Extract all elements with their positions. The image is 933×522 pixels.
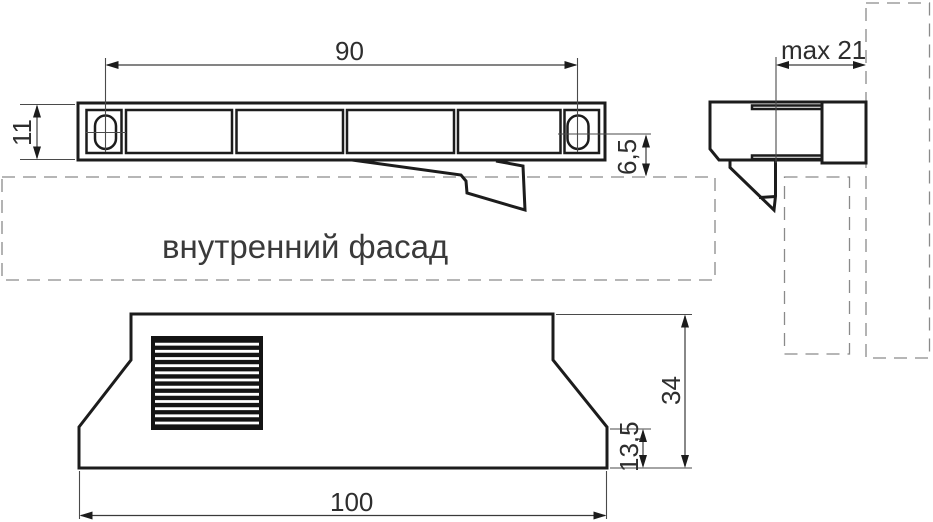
internal-facade-label: внутренний фасад xyxy=(162,228,448,265)
side-view-hook xyxy=(730,161,776,210)
technical-drawing: внутренний фасад xyxy=(0,0,933,522)
front-view xyxy=(79,314,607,468)
side-view xyxy=(710,102,866,210)
drawing-canvas: внутренний фасад xyxy=(0,0,933,522)
dim-offset-label: 6,5 xyxy=(612,139,642,175)
side-view-body xyxy=(710,102,822,160)
dim-foot-height-label: 13,5 xyxy=(614,421,644,472)
arrow-up xyxy=(642,135,650,148)
dim-foot-height: 13,5 xyxy=(610,421,651,472)
top-view-flap xyxy=(352,160,525,210)
dim-total-height-label: 34 xyxy=(656,376,686,405)
dim-grille-height: 11 xyxy=(7,105,75,160)
dim-offset-to-facade: 6,5 xyxy=(612,135,650,177)
arrow-down xyxy=(33,147,41,160)
dim-grille-height-label: 11 xyxy=(7,119,37,146)
arrow-up xyxy=(681,315,689,328)
front-view-grille xyxy=(152,337,262,429)
top-view xyxy=(78,58,651,210)
top-view-frame xyxy=(78,103,605,160)
side-lower-panel-outline xyxy=(785,177,850,354)
dim-slot-spacing-label: 90 xyxy=(335,36,364,66)
arrow-left xyxy=(106,61,119,69)
arrow-down xyxy=(642,164,650,177)
dim-slot-spacing: 90 xyxy=(106,36,578,69)
outer-facade-panel-outline xyxy=(866,3,930,358)
arrow-left xyxy=(80,512,93,520)
arrow-right xyxy=(594,512,607,520)
side-view-hook-foot xyxy=(759,197,776,198)
side-view-nose-block xyxy=(822,102,866,163)
arrow-down xyxy=(681,455,689,468)
arrow-up xyxy=(33,105,41,118)
dim-overall-width: 100 xyxy=(80,471,607,520)
dim-overall-width-label: 100 xyxy=(330,487,373,517)
dim-max-depth-label: max 21 xyxy=(781,35,866,65)
arrow-right xyxy=(565,61,578,69)
